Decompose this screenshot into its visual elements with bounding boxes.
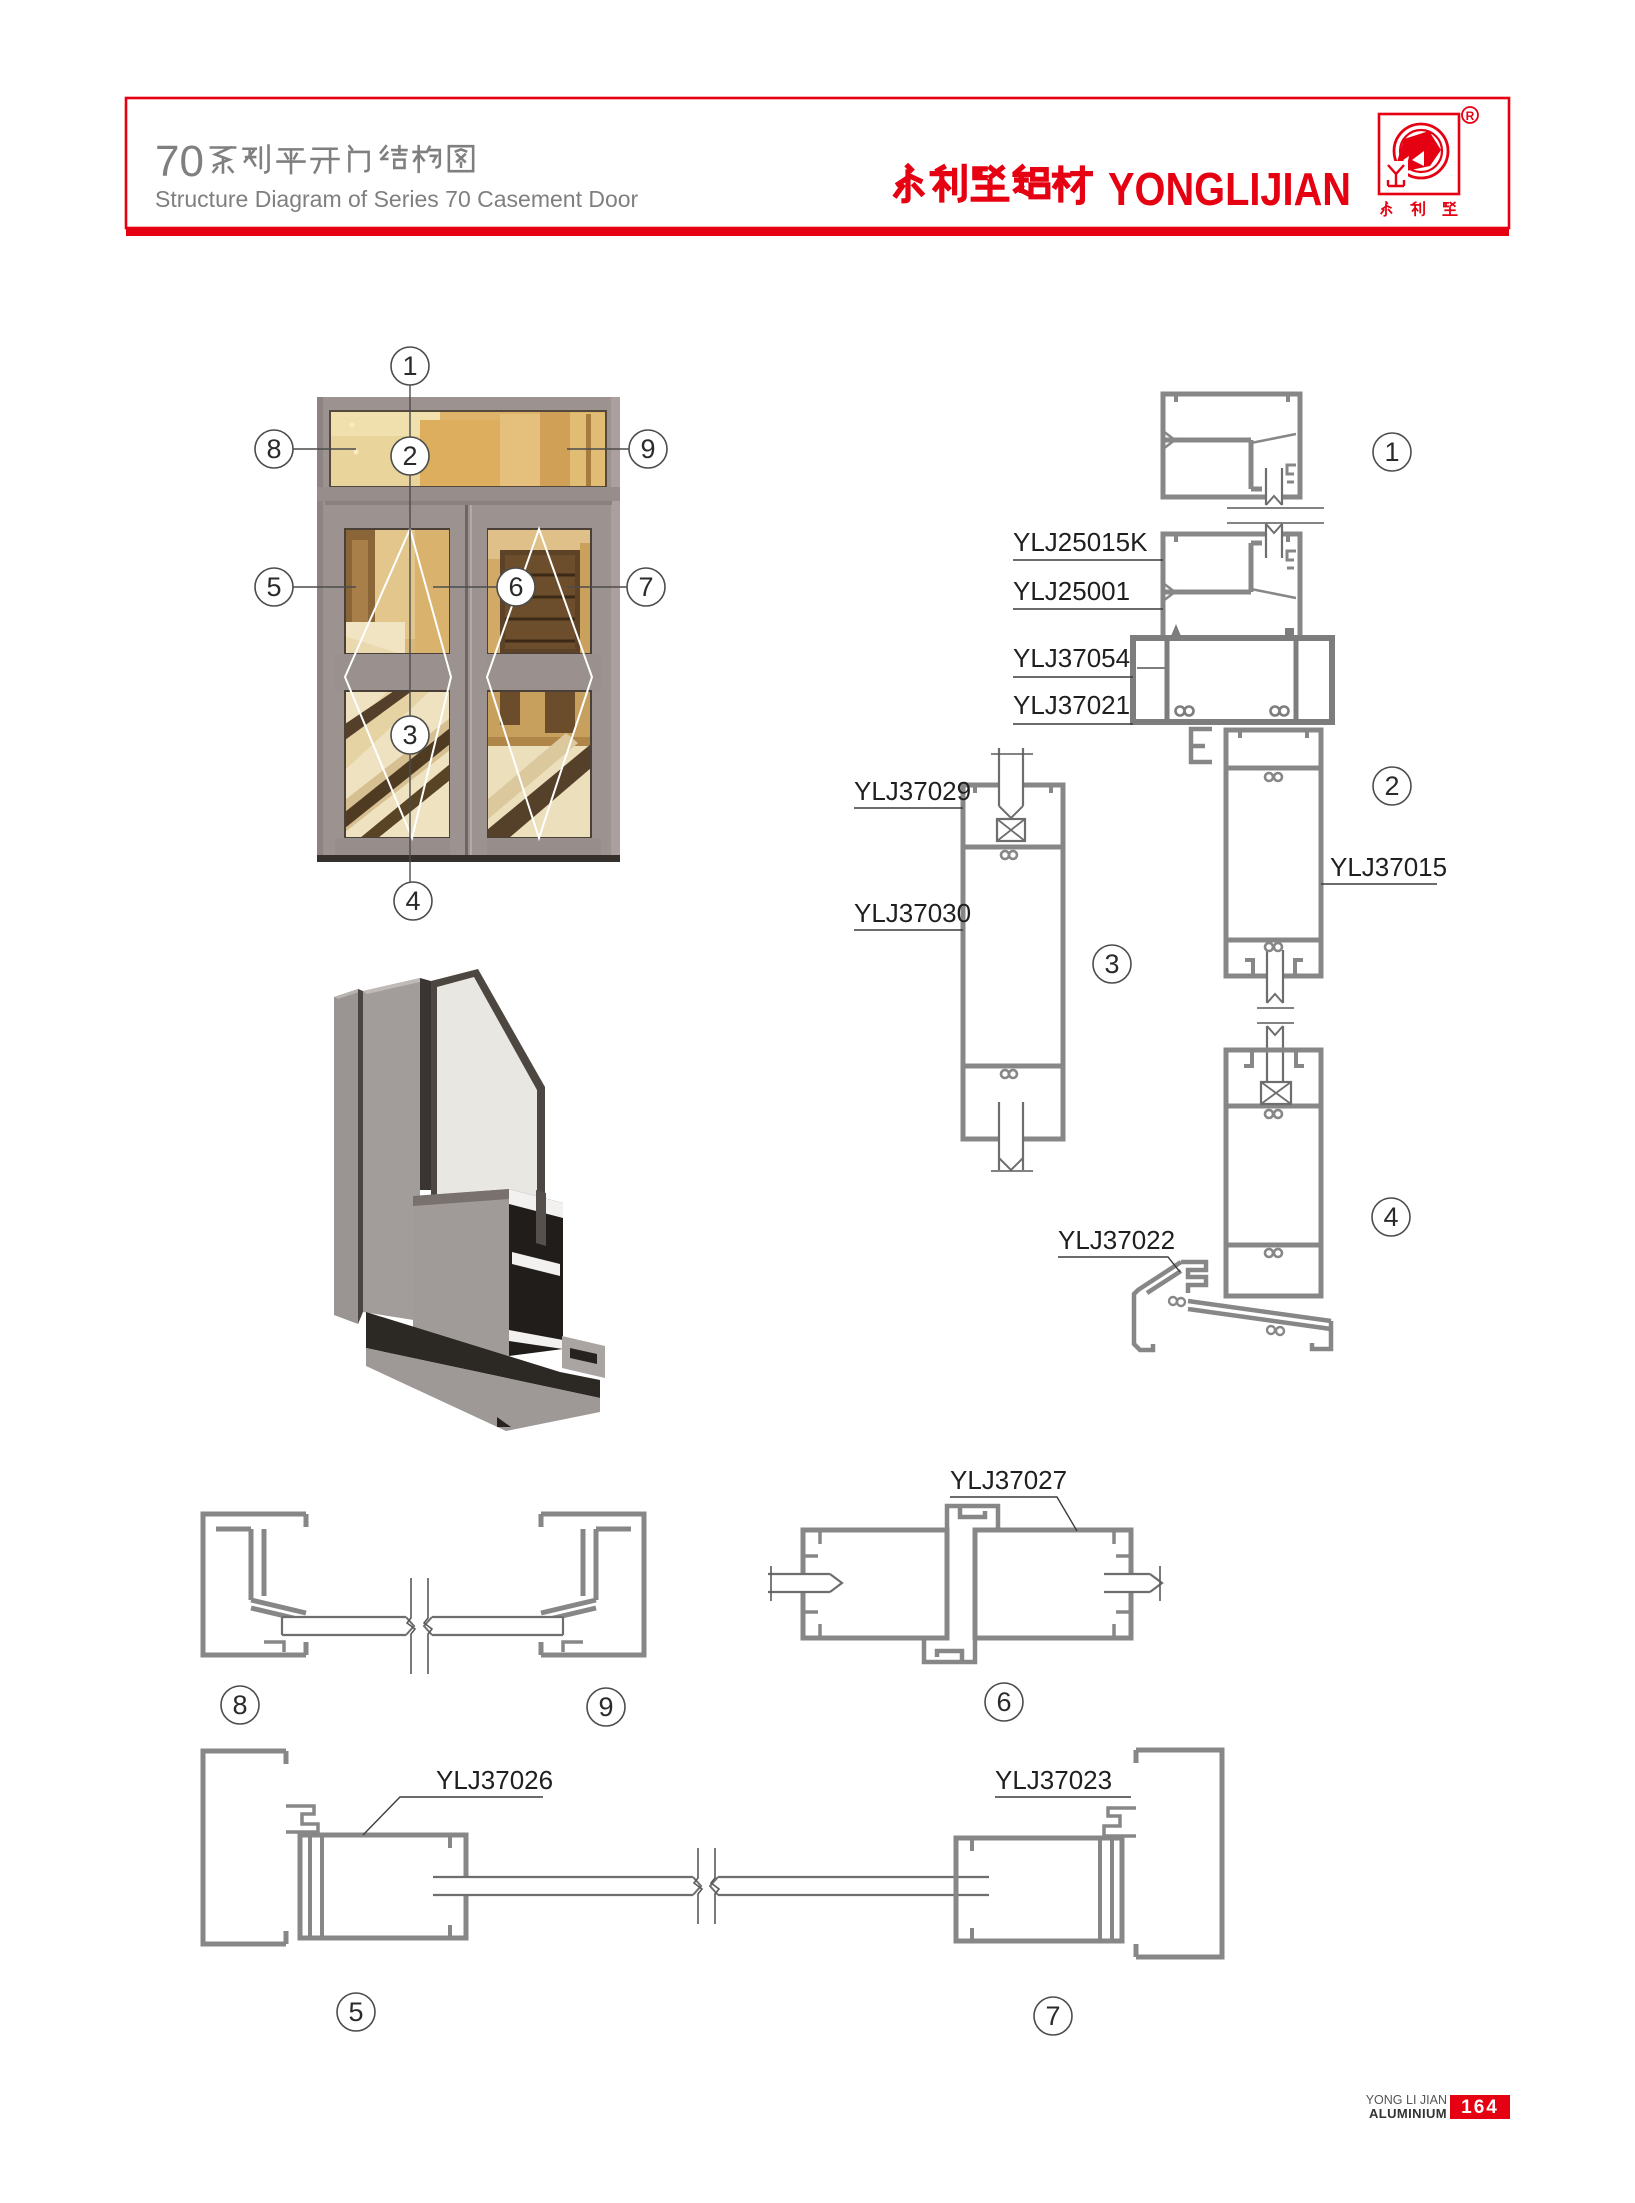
svg-text:4: 4 [1383,1202,1398,1232]
svg-text:ALUMINIUM: ALUMINIUM [1369,2106,1447,2121]
svg-text:8: 8 [266,434,281,464]
svg-text:Structure Diagram of Series 70: Structure Diagram of Series 70 Casement … [155,186,639,212]
svg-text:YLJ37021: YLJ37021 [1013,690,1130,720]
svg-text:7: 7 [1045,2001,1060,2031]
svg-text:4: 4 [405,886,420,916]
svg-text:1: 1 [402,351,417,381]
svg-text:9: 9 [598,1692,613,1722]
svg-text:R: R [1466,109,1475,123]
svg-text:YLJ37029: YLJ37029 [854,776,971,806]
svg-text:7: 7 [638,572,653,602]
svg-text:2: 2 [1384,771,1399,801]
svg-text:YLJ37030: YLJ37030 [854,898,971,928]
svg-text:YLJ25015K: YLJ25015K [1013,527,1148,557]
svg-text:YONG LI JIAN: YONG LI JIAN [1366,2093,1447,2107]
svg-text:6: 6 [508,572,523,602]
svg-text:3: 3 [402,720,417,750]
svg-text:8: 8 [232,1690,247,1720]
svg-text:3: 3 [1104,949,1119,979]
svg-text:9: 9 [640,434,655,464]
svg-text:YONGLIJIAN: YONGLIJIAN [1108,163,1351,215]
svg-text:1: 1 [1384,437,1399,467]
svg-text:YLJ37023: YLJ37023 [995,1765,1112,1795]
svg-text:YLJ37026: YLJ37026 [436,1765,553,1795]
svg-text:6: 6 [996,1687,1011,1717]
svg-text:YLJ37054: YLJ37054 [1013,643,1130,673]
svg-text:5: 5 [266,572,281,602]
svg-text:YLJ25001: YLJ25001 [1013,576,1130,606]
svg-text:70: 70 [155,137,204,186]
svg-text:164: 164 [1461,2097,1499,2118]
svg-text:2: 2 [402,441,417,471]
svg-text:5: 5 [348,1997,363,2027]
svg-text:YLJ37015: YLJ37015 [1330,852,1447,882]
svg-text:YLJ37022: YLJ37022 [1058,1225,1175,1255]
svg-text:YLJ37027: YLJ37027 [950,1465,1067,1495]
